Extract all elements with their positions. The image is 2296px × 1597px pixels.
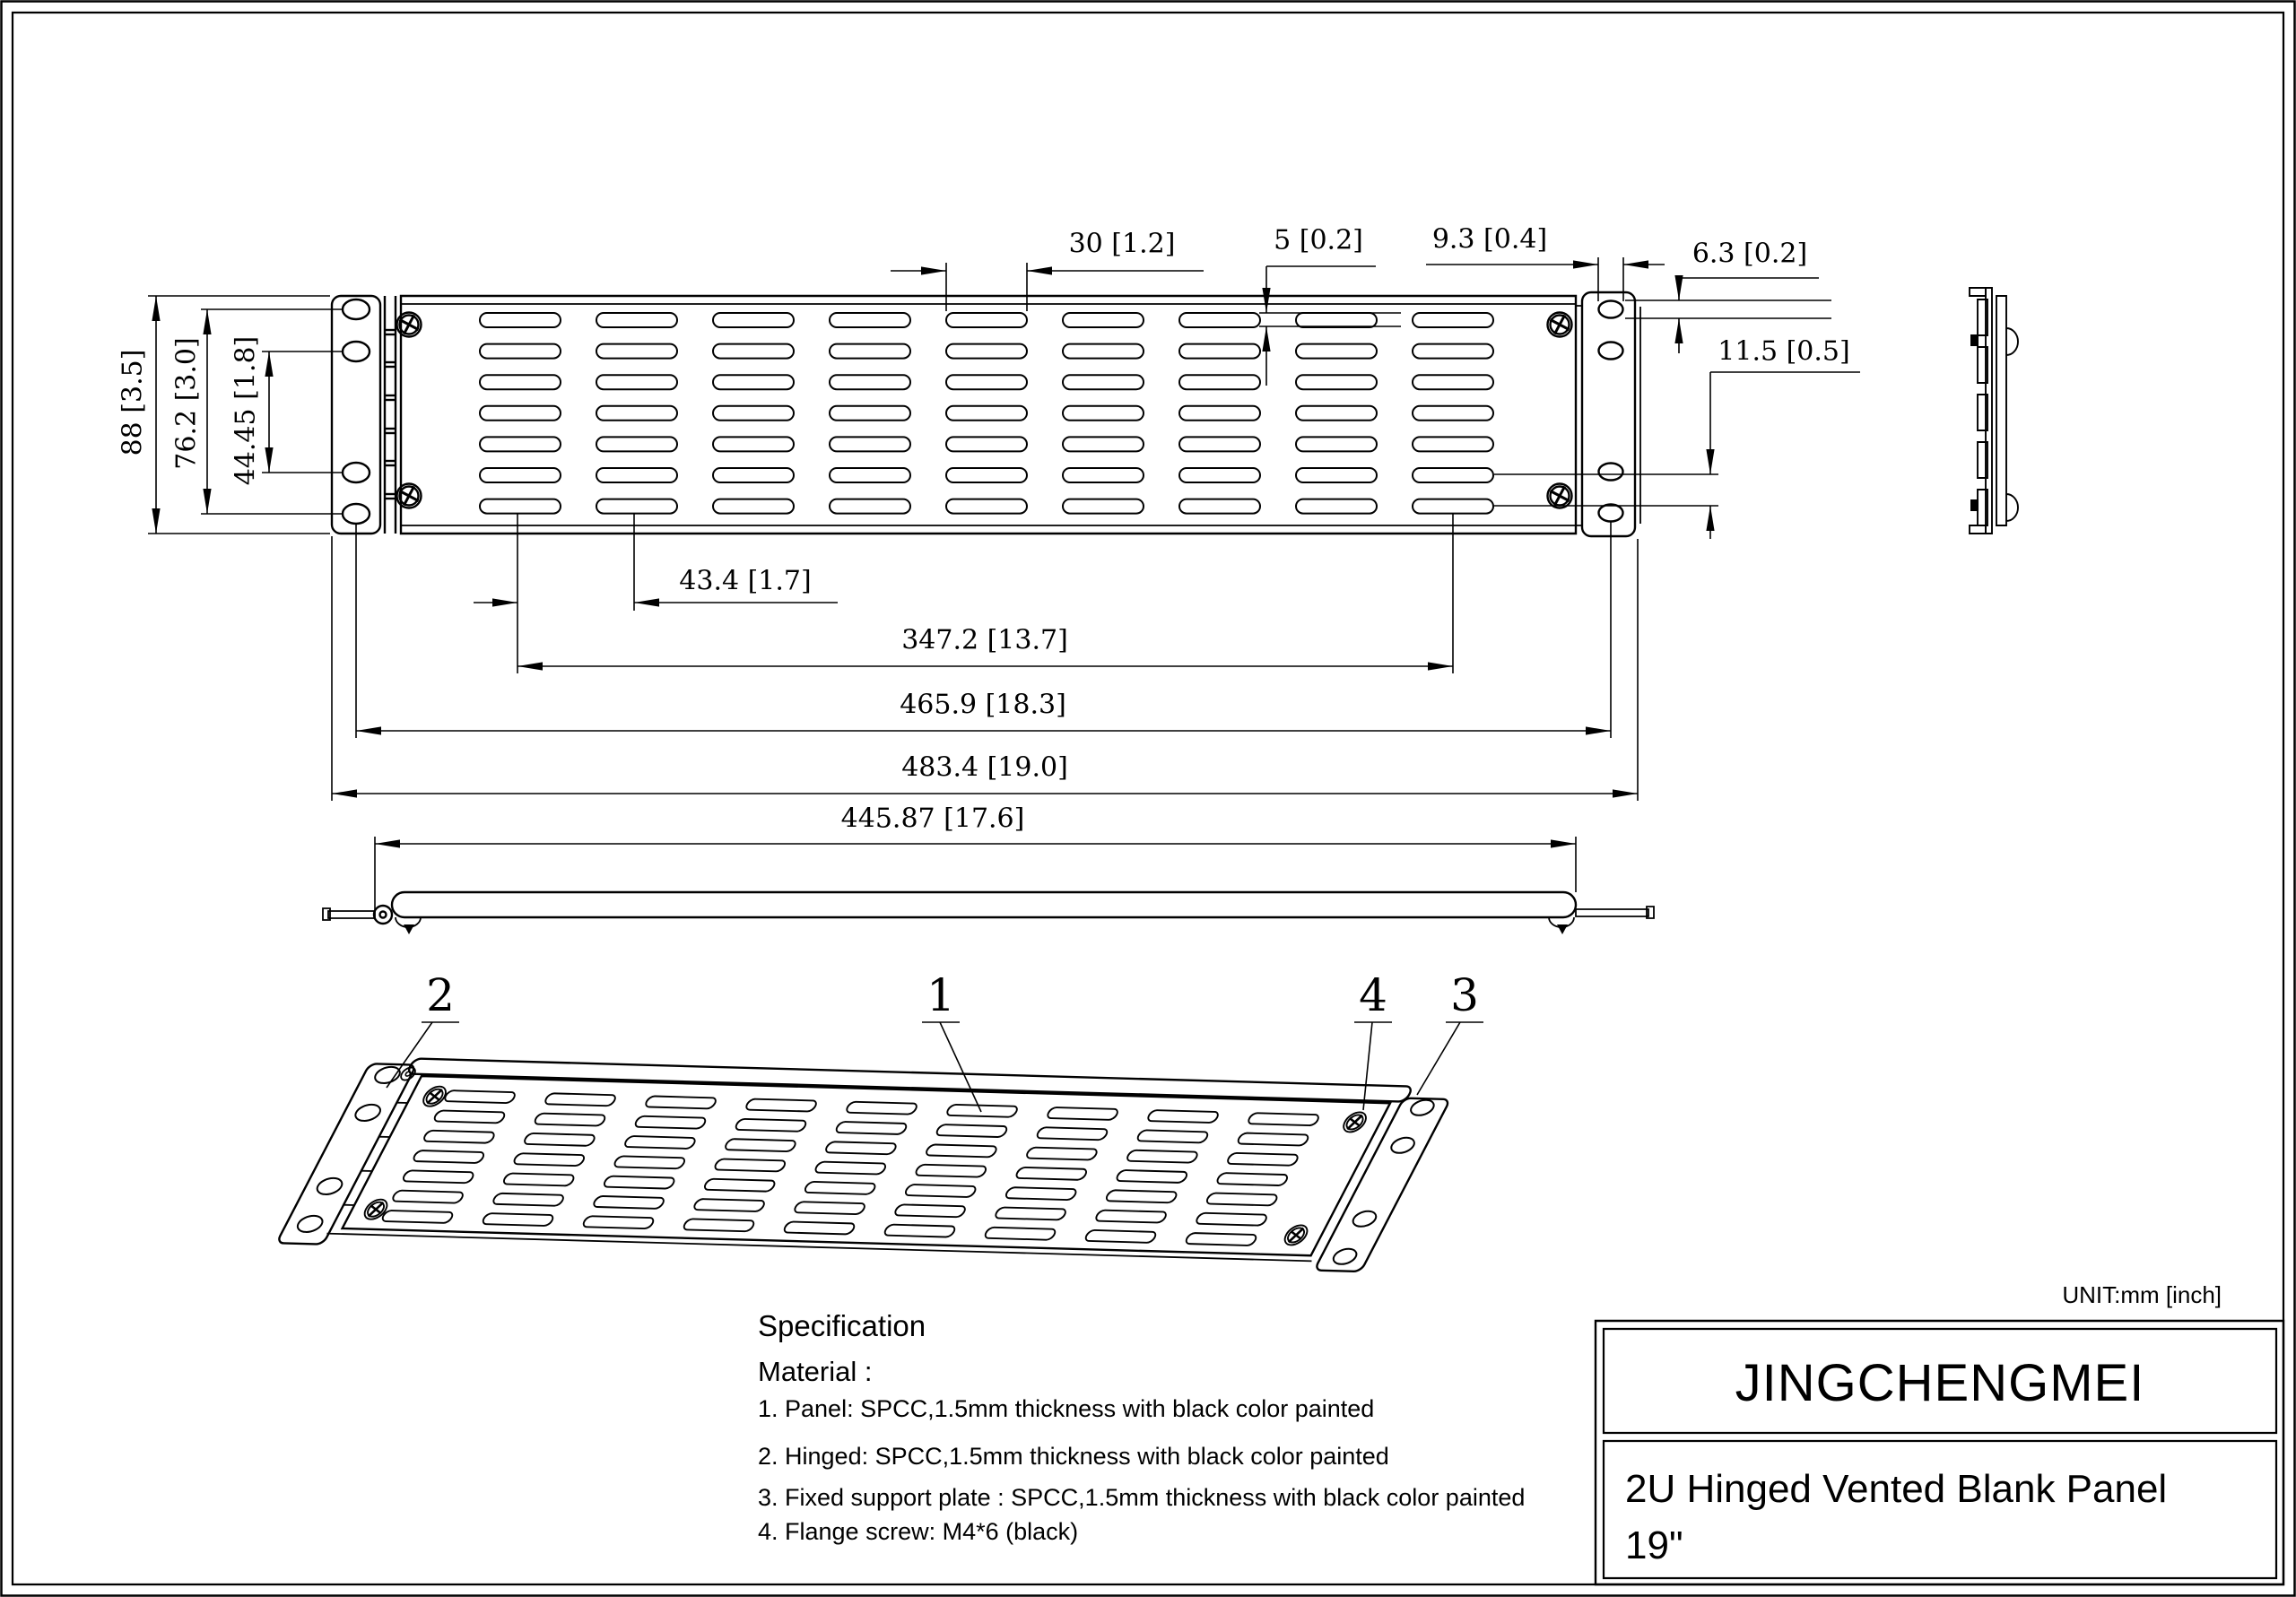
dim-slot-span: 347.2 [13.7] [901, 625, 1068, 656]
callout-support-plate: 3 [1450, 969, 1479, 1021]
iso-vent-slots [380, 1090, 1320, 1245]
screw-tip-right [1557, 924, 1568, 934]
top-view [323, 892, 1654, 934]
brand-name: JINGCHENGMEI [1735, 1354, 2145, 1412]
technical-drawing-canvas: 30 [1.2] 5 [0.2] 9.3 [0.4] 6.3 [0.2] 11.… [0, 0, 2296, 1597]
dim-slot-row-pitch: 11.5 [0.5] [1718, 336, 1849, 368]
dim-hinge-hole-span-inner: 44.45 [1.8] [230, 336, 262, 486]
product-name: 2U Hinged Vented Blank Panel [1625, 1467, 2167, 1511]
side-panel-edge [1996, 296, 2006, 525]
spec-item-panel: 1. Panel: SPCC,1.5mm thickness with blac… [758, 1395, 1374, 1422]
dim-hinge-hole-span-outer: 76.2 [3.0] [171, 337, 203, 469]
callout-panel: 1 [926, 969, 955, 1021]
hinge-knuckle-marks [385, 330, 396, 499]
dim-slot-height: 5 [0.2] [1274, 225, 1363, 256]
spec-heading: Specification [758, 1309, 926, 1342]
title-block: UNIT:mm [inch] JINGCHENGMEI 2U Hinged Ve… [1596, 1281, 2283, 1584]
callout-flange-screw: 4 [1359, 969, 1387, 1021]
dim-ear-hole-width: 9.3 [0.4] [1432, 224, 1547, 256]
flange-screws [395, 310, 1574, 510]
dim-body-width: 445.87 [17.6] [841, 803, 1025, 835]
spec-subheading: Material : [758, 1356, 872, 1387]
iso-flange-screws [360, 1085, 1372, 1246]
dim-panel-height: 88 [3.5] [117, 350, 149, 456]
isometric-view [276, 1057, 1457, 1273]
dim-slot-width: 30 [1.2] [1069, 229, 1176, 260]
spec-item-flange-screw: 4. Flange screw: M4*6 (black) [758, 1518, 1078, 1545]
dim-overall-width: 483.4 [19.0] [901, 752, 1068, 784]
dimension-lines [148, 257, 1860, 1112]
vent-slot-grid [480, 313, 1493, 514]
hinge-pin [374, 906, 392, 924]
dimension-labels: 30 [1.2] 5 [0.2] 9.3 [0.4] 6.3 [0.2] 11.… [117, 224, 1850, 835]
spec-item-hinged: 2. Hinged: SPCC,1.5mm thickness with bla… [758, 1443, 1389, 1470]
specification-block: Specification Material : 1. Panel: SPCC,… [758, 1309, 1525, 1545]
product-size: 19" [1625, 1523, 1683, 1567]
dim-mount-hole-span: 465.9 [18.3] [900, 690, 1066, 721]
left-ear-mount-holes [343, 299, 370, 524]
top-view-right-ear-edge [1576, 909, 1648, 916]
engineering-drawing-page: 30 [1.2] 5 [0.2] 9.3 [0.4] 6.3 [0.2] 11.… [0, 0, 2296, 1597]
screw-tip-left [404, 924, 414, 934]
iso-hinge-leaf [276, 1063, 416, 1244]
front-panel-face [401, 296, 1576, 534]
dim-slot-col-pitch: 43.4 [1.7] [679, 566, 811, 597]
side-screw-heads [2006, 328, 2018, 521]
callout-hinge: 2 [426, 969, 455, 1021]
top-view-panel-body [392, 892, 1576, 917]
dim-ear-hole-height: 6.3 [0.2] [1692, 239, 1807, 270]
top-view-left-ear-edge [328, 911, 375, 918]
front-view [332, 292, 1640, 536]
front-right-support-ear [1576, 292, 1640, 536]
right-ear-mount-holes [1599, 301, 1623, 522]
front-left-hinge-ear [332, 296, 380, 534]
iso-support-plate [1314, 1098, 1450, 1272]
unit-note: UNIT:mm [inch] [2062, 1281, 2222, 1308]
spec-item-support-plate: 3. Fixed support plate : SPCC,1.5mm thic… [758, 1484, 1525, 1511]
callout-labels: 2 1 4 3 [426, 969, 1479, 1021]
side-view [1970, 288, 2018, 534]
